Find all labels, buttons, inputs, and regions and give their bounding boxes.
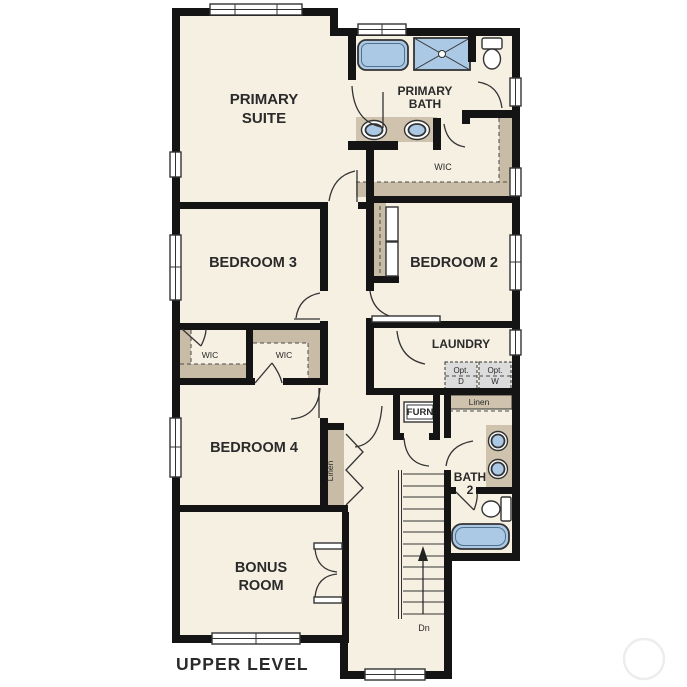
primary-sink-1-basin xyxy=(366,124,383,136)
primary-shower-drain xyxy=(439,51,446,58)
label-wic-1: WIC xyxy=(202,350,219,360)
window xyxy=(170,418,181,477)
wic2-shelf-right xyxy=(308,343,320,378)
label-bedroom-3: BEDROOM 3 xyxy=(209,255,297,271)
window xyxy=(212,633,300,644)
label-stairs-down: Dn xyxy=(418,623,430,633)
bedroom2-closet-door-1 xyxy=(386,207,398,241)
label-laundry: LAUNDRY xyxy=(432,337,490,351)
bonus-door-leaf-1 xyxy=(314,543,342,549)
floor-plan-drawing: PRIMARYSUITEPRIMARYBATHWICBEDROOM 3BEDRO… xyxy=(0,0,687,687)
primary-toilet-tank xyxy=(482,38,502,49)
label-bedroom-4: BEDROOM 4 xyxy=(210,440,298,456)
window xyxy=(365,669,425,680)
primary-bathtub xyxy=(358,40,408,70)
bath2-toilet-bowl xyxy=(482,501,500,517)
label-linen-closet: Linen xyxy=(325,460,335,481)
bath2-toilet-tank xyxy=(501,497,511,521)
primary-wic-shelf-bottom xyxy=(356,182,512,197)
window xyxy=(170,235,181,300)
bedroom2-closet-door-2 xyxy=(386,242,398,276)
label-wic-primary: WIC xyxy=(434,162,452,172)
window xyxy=(510,168,521,196)
bath2-sink-1-basin xyxy=(492,435,505,448)
label-upper-level: UPPER LEVEL xyxy=(176,654,309,674)
window xyxy=(510,235,521,290)
primary-sink-2-basin xyxy=(409,124,426,136)
label-wic-2: WIC xyxy=(276,350,293,360)
window xyxy=(510,330,521,355)
window xyxy=(358,24,406,35)
wic1-shelf-bottom xyxy=(180,364,246,378)
floor-plan-page: PRIMARYSUITEPRIMARYBATHWICBEDROOM 3BEDRO… xyxy=(0,0,687,687)
label-linen-laundry: Linen xyxy=(469,397,490,407)
bonus-door-leaf-2 xyxy=(314,597,342,603)
window xyxy=(170,152,181,177)
primary-toilet-bowl xyxy=(484,49,501,69)
label-furnace: FURN xyxy=(407,407,434,418)
window xyxy=(510,78,521,106)
photo-watermark xyxy=(624,639,664,679)
wic2-shelf-top xyxy=(253,330,320,343)
window xyxy=(210,4,302,15)
doorway-casing xyxy=(372,316,440,322)
bath2-sink-2-basin xyxy=(492,463,505,476)
label-bedroom-2: BEDROOM 2 xyxy=(410,255,498,271)
